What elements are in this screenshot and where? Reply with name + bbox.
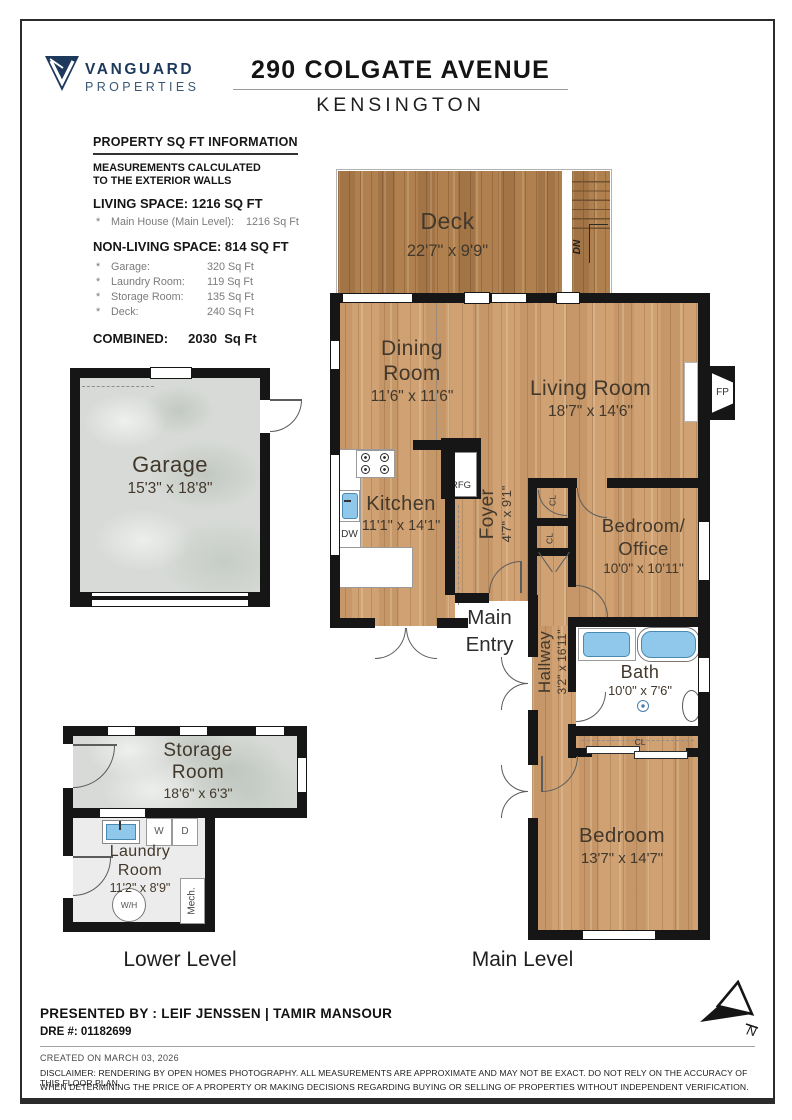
disclaimer-line-2: WHEN DETERMINING THE PRICE OF A PROPERTY… [40,1082,755,1092]
combined-value: 2030 Sq Ft [188,331,257,346]
laundry-sink-basin [106,824,136,840]
window [343,293,412,303]
storage-window [108,726,135,736]
room-name: Storage [128,740,268,762]
kitchen-island [338,547,413,588]
storage-wall-east [297,726,307,758]
wall-bedroom-west [528,818,538,940]
presented-by: PRESENTED BY : LEIF JENSSEN | TAMIR MANS… [40,1006,392,1021]
item-value: 240 Sq Ft [207,306,254,318]
water-heater-label: W/H [112,900,146,910]
sqft-info-panel: PROPERTY SQ FT INFORMATION MEASUREMENTS … [93,133,329,346]
living-space-item: *Main House (Main Level):1216 Sq Ft [93,216,329,228]
wall-office-bath-divider [568,617,710,627]
bedroom-door-leaf [541,756,543,792]
closet-label: CL [548,492,559,510]
room-name: Laundry [82,842,198,861]
brand-subname: PROPERTIES [85,80,199,94]
room-name: Main [447,604,532,631]
room-name: Foyer [477,449,499,579]
storage-window [297,758,307,792]
storage-wall-west [63,726,73,744]
wall-closet-west [528,478,537,603]
storage-room-label: Storage Room 18'6" x 6'3" [128,740,268,802]
room-name: Dining [352,336,472,361]
wall-kitchen-south [330,618,375,628]
laundry-opening [100,808,145,818]
closet-label: CL [545,530,556,548]
kitchen-label: Kitchen 11'1" x 14'1" [342,493,460,536]
garage-wall-east [260,368,270,400]
item-label: Laundry Room: [111,275,207,290]
page-title: 290 COLGATE AVENUE [228,56,573,85]
dre-number: DRE #: 01182699 [40,1026,131,1038]
fireplace-hearth [684,362,698,422]
room-dims: 13'7" x 14'7" [558,848,686,869]
combined-total: COMBINED:2030 Sq Ft [93,331,329,346]
window [583,930,655,940]
stair-dn-line [589,225,590,263]
deck-name: Deck [420,208,474,234]
laundry-room-label: Laundry Room 11'2" x 8'9" [82,842,198,896]
title-underline [233,89,568,90]
item-label: Storage Room: [111,290,207,305]
garage-label: Garage 15'3" x 18'8" [102,452,238,499]
bullet: * [93,290,111,305]
brand-logo-icon [44,55,80,98]
bathtub-basin [641,631,696,658]
garage-door-leaf [270,399,302,401]
item-value: 119 Sq Ft [207,276,253,288]
nonliving-item: *Storage Room:135 Sq Ft [93,290,329,305]
stove-burner [361,465,370,474]
garage-door-opening [92,593,248,606]
storage-window [180,726,207,736]
floor-drain-icon [637,700,649,712]
closet-label: CL [630,737,650,747]
window [464,292,490,304]
dryer-label: D [172,826,198,837]
living-item-value: 1216 Sq Ft [246,216,299,228]
window [556,292,580,304]
deck-stair-gap [562,171,572,237]
lower-level-label: Lower Level [80,948,280,972]
stove-burner [380,453,389,462]
window [330,455,340,555]
bullet: * [93,275,111,290]
window [330,341,340,369]
stair-dn-tick [589,224,608,225]
fireplace-label: FP [710,387,735,398]
closet-sliding-door [586,746,640,754]
room-dims: 10'0" x 7'6" [592,682,688,699]
bedroom-office-label: Bedroom/ Office 10'0" x 10'11" [586,514,701,578]
main-entry-label: Main Entry [447,604,532,658]
room-dims: 11'2" x 8'9" [82,880,198,896]
nonliving-space-heading: NON-LIVING SPACE: 814 SQ FT [93,239,329,254]
laundry-faucet-icon [119,821,121,830]
wall-kitchen-dining-divider [413,440,443,450]
room-dims: 11'1" x 14'1" [342,516,460,536]
item-value: 320 Sq Ft [207,261,254,273]
brand-name: VANGUARD [85,61,194,79]
garage-dashed-line [82,386,154,387]
bath-sink [583,632,630,657]
washer-label: W [146,826,172,837]
room-name: Kitchen [342,493,460,516]
down-label: DN [572,232,586,262]
combined-label: COMBINED: [93,331,168,346]
sqft-heading: PROPERTY SQ FT INFORMATION [93,135,298,155]
room-name: Room [352,361,472,386]
item-label: Garage: [111,260,207,275]
bedroom-label: Bedroom 13'7" x 14'7" [558,824,686,869]
stair-treads [572,173,610,237]
footer-divider [40,1046,755,1047]
room-dims: 10'0" x 10'11" [586,560,701,578]
laundry-wall-east [205,818,215,932]
nonliving-item: *Deck:240 Sq Ft [93,305,329,320]
room-dims: 15'3" x 18'8" [102,478,238,499]
page-subtitle: KENSINGTON [228,94,573,117]
living-room-label: Living Room 18'7" x 14'6" [498,376,683,422]
dining-room-label: Dining Room 11'6" x 11'6" [352,336,472,407]
window [492,293,526,303]
item-value: 135 Sq Ft [207,291,254,303]
floorplan-page: { "header": { "logo": {"line1": "VANGUAR… [0,0,792,1120]
room-name: Garage [102,452,238,478]
room-dims: 3'2" x 16'11" [555,587,569,737]
item-label: Deck: [111,305,207,320]
bath-label: Bath 10'0" x 7'6" [592,662,688,699]
nonliving-item: *Garage:320 Sq Ft [93,260,329,275]
room-name: Bedroom/ [586,514,701,537]
deck-dims: 22'7" x 9'9" [360,242,535,261]
main-level-label: Main Level [430,948,615,972]
room-name: Room [128,762,268,784]
room-name: Hallway [535,587,555,737]
room-name: Bath [592,662,688,682]
room-name: Room [82,861,198,880]
bullet: * [93,305,111,320]
room-dims: 4'7" x 9'1" [499,449,515,579]
foyer-label: Foyer 4'7" x 9'1" [477,449,521,579]
living-space-heading: LIVING SPACE: 1216 SQ FT [93,196,329,211]
stove-burner [361,453,370,462]
living-item-label: Main House (Main Level): [111,216,234,228]
laundry-wall-west [63,818,73,856]
room-name: Entry [447,631,532,658]
bullet: * [93,216,111,228]
storage-window [256,726,284,736]
wall-office-west [568,478,576,587]
north-arrow-icon: N [694,980,766,1043]
garage-wall-east [260,433,270,607]
created-on: CREATED ON MARCH 03, 2026 [40,1053,179,1063]
room-name: Bedroom [558,824,686,848]
garage-door-line [92,596,248,600]
room-name: Living Room [498,376,683,401]
stove-burner [380,465,389,474]
hallway-label: Hallway 3'2" x 16'11" [535,587,571,737]
sqft-note-2: TO THE EXTERIOR WALLS [93,175,329,188]
wall-foyer-front [455,593,489,603]
room-dims: 18'7" x 14'6" [498,401,683,422]
room-dims: 18'6" x 6'3" [128,784,268,802]
closet-sliding-door [634,751,688,759]
sqft-note-1: MEASUREMENTS CALCULATED [93,162,329,175]
deck-label: Deck [360,208,535,235]
wall-bath-south [568,726,698,736]
wall-living-office-divider [607,478,698,488]
room-name: Office [586,537,701,560]
bullet: * [93,260,111,275]
nonliving-item: *Laundry Room:119 Sq Ft [93,275,329,290]
garage-wall-west [70,368,80,607]
window [698,658,710,692]
garage-window [150,367,192,379]
room-dims: 11'6" x 11'6" [352,386,472,407]
storage-door-leaf [73,744,117,746]
